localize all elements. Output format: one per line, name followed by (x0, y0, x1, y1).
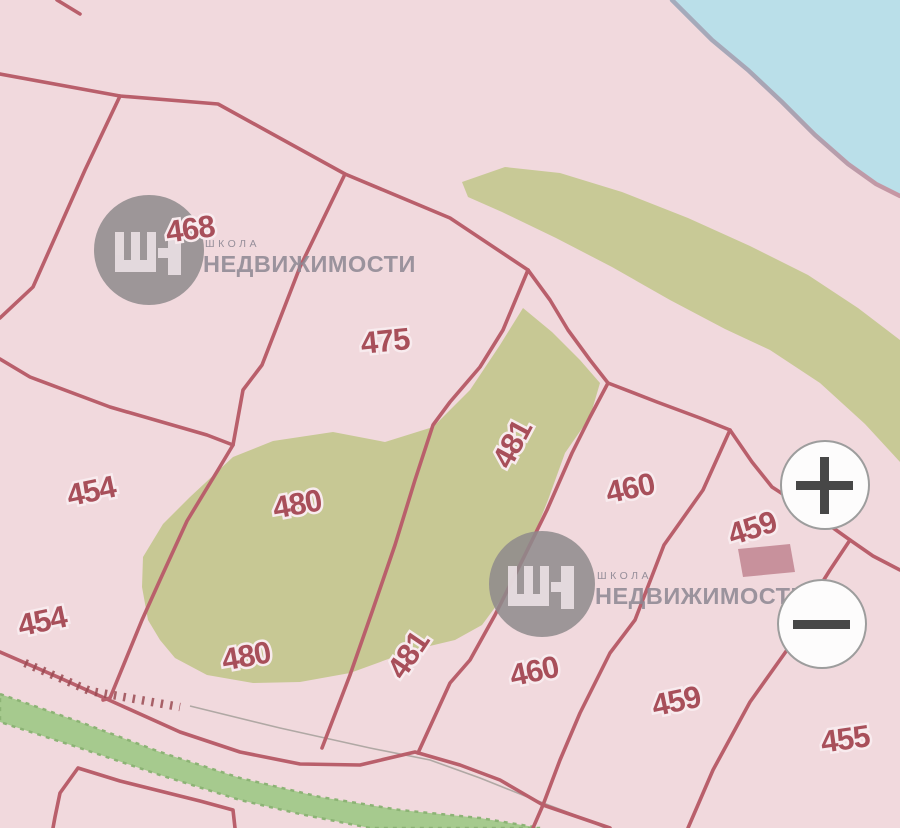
parcel-label: 455 (818, 718, 872, 760)
parcel-label: 475 (359, 321, 412, 361)
plus-icon (820, 457, 829, 514)
zoom-in-button[interactable] (780, 440, 870, 530)
minus-icon (793, 620, 850, 629)
parcel-label: 468 (163, 208, 217, 250)
zoom-out-button[interactable] (777, 579, 867, 669)
map-viewport[interactable]: ШКОЛА НЕДВИЖИМОСТИ ШКОЛА НЕДВИЖИМОСТИ 46… (0, 0, 900, 828)
map-canvas[interactable]: ШКОЛА НЕДВИЖИМОСТИ ШКОЛА НЕДВИЖИМОСТИ 46… (0, 0, 900, 828)
watermark-line2: НЕДВИЖИМОСТИ (203, 251, 416, 277)
watermark-line2: НЕДВИЖИМОСТИ (595, 583, 808, 609)
building-footprint (738, 544, 795, 577)
watermark-line1: ШКОЛА (597, 570, 652, 582)
